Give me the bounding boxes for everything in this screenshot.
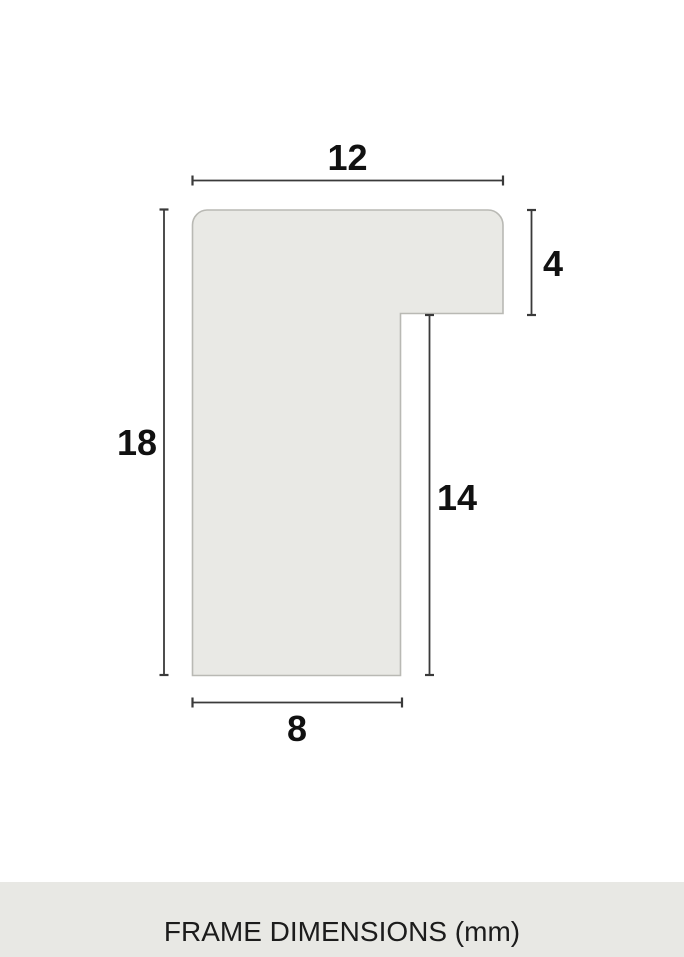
- svg-text:8: 8: [287, 708, 307, 749]
- svg-text:18: 18: [117, 422, 157, 463]
- svg-text:4: 4: [543, 243, 563, 284]
- svg-text:14: 14: [437, 477, 477, 518]
- svg-text:12: 12: [327, 137, 367, 178]
- svg-text:FRAME DIMENSIONS (mm): FRAME DIMENSIONS (mm): [164, 916, 520, 947]
